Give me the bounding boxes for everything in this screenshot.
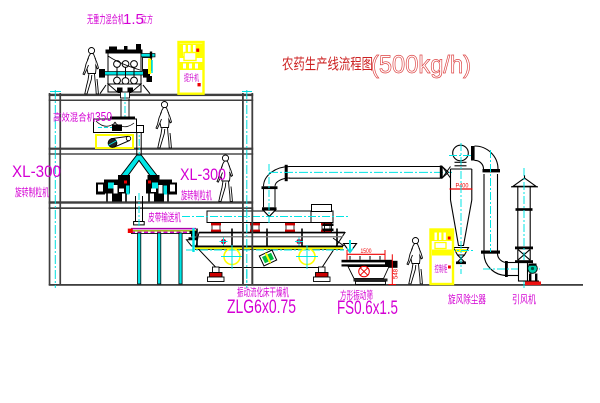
svg-text:皮带输送机: 皮带输送机 (148, 210, 181, 224)
svg-text:548: 548 (394, 268, 400, 279)
svg-text:旋风除尘器: 旋风除尘器 (448, 292, 486, 306)
svg-text:立方: 立方 (141, 13, 153, 26)
svg-text:350: 350 (95, 109, 112, 124)
svg-text:农药生产线流程图: 农药生产线流程图 (282, 56, 373, 73)
svg-text:XL-300: XL-300 (180, 165, 226, 184)
svg-text:旋转制粒机: 旋转制粒机 (15, 185, 49, 199)
svg-text:高效混合机: 高效混合机 (53, 111, 95, 124)
svg-text:XL-300: XL-300 (12, 162, 61, 181)
svg-text:P400: P400 (456, 183, 469, 190)
svg-text:FS0.6x1.5: FS0.6x1.5 (337, 298, 398, 319)
svg-text:旋转制粒机: 旋转制粒机 (181, 188, 212, 202)
svg-text:ZLG6x0.75: ZLG6x0.75 (227, 297, 296, 318)
svg-text:引风机: 引风机 (512, 292, 536, 306)
svg-text:1500: 1500 (361, 249, 373, 255)
svg-text:(500kg/h): (500kg/h) (371, 51, 471, 79)
svg-text:控制柜: 控制柜 (435, 263, 448, 274)
svg-text:提升机: 提升机 (184, 72, 199, 83)
svg-text:无重力混合机: 无重力混合机 (87, 12, 124, 26)
